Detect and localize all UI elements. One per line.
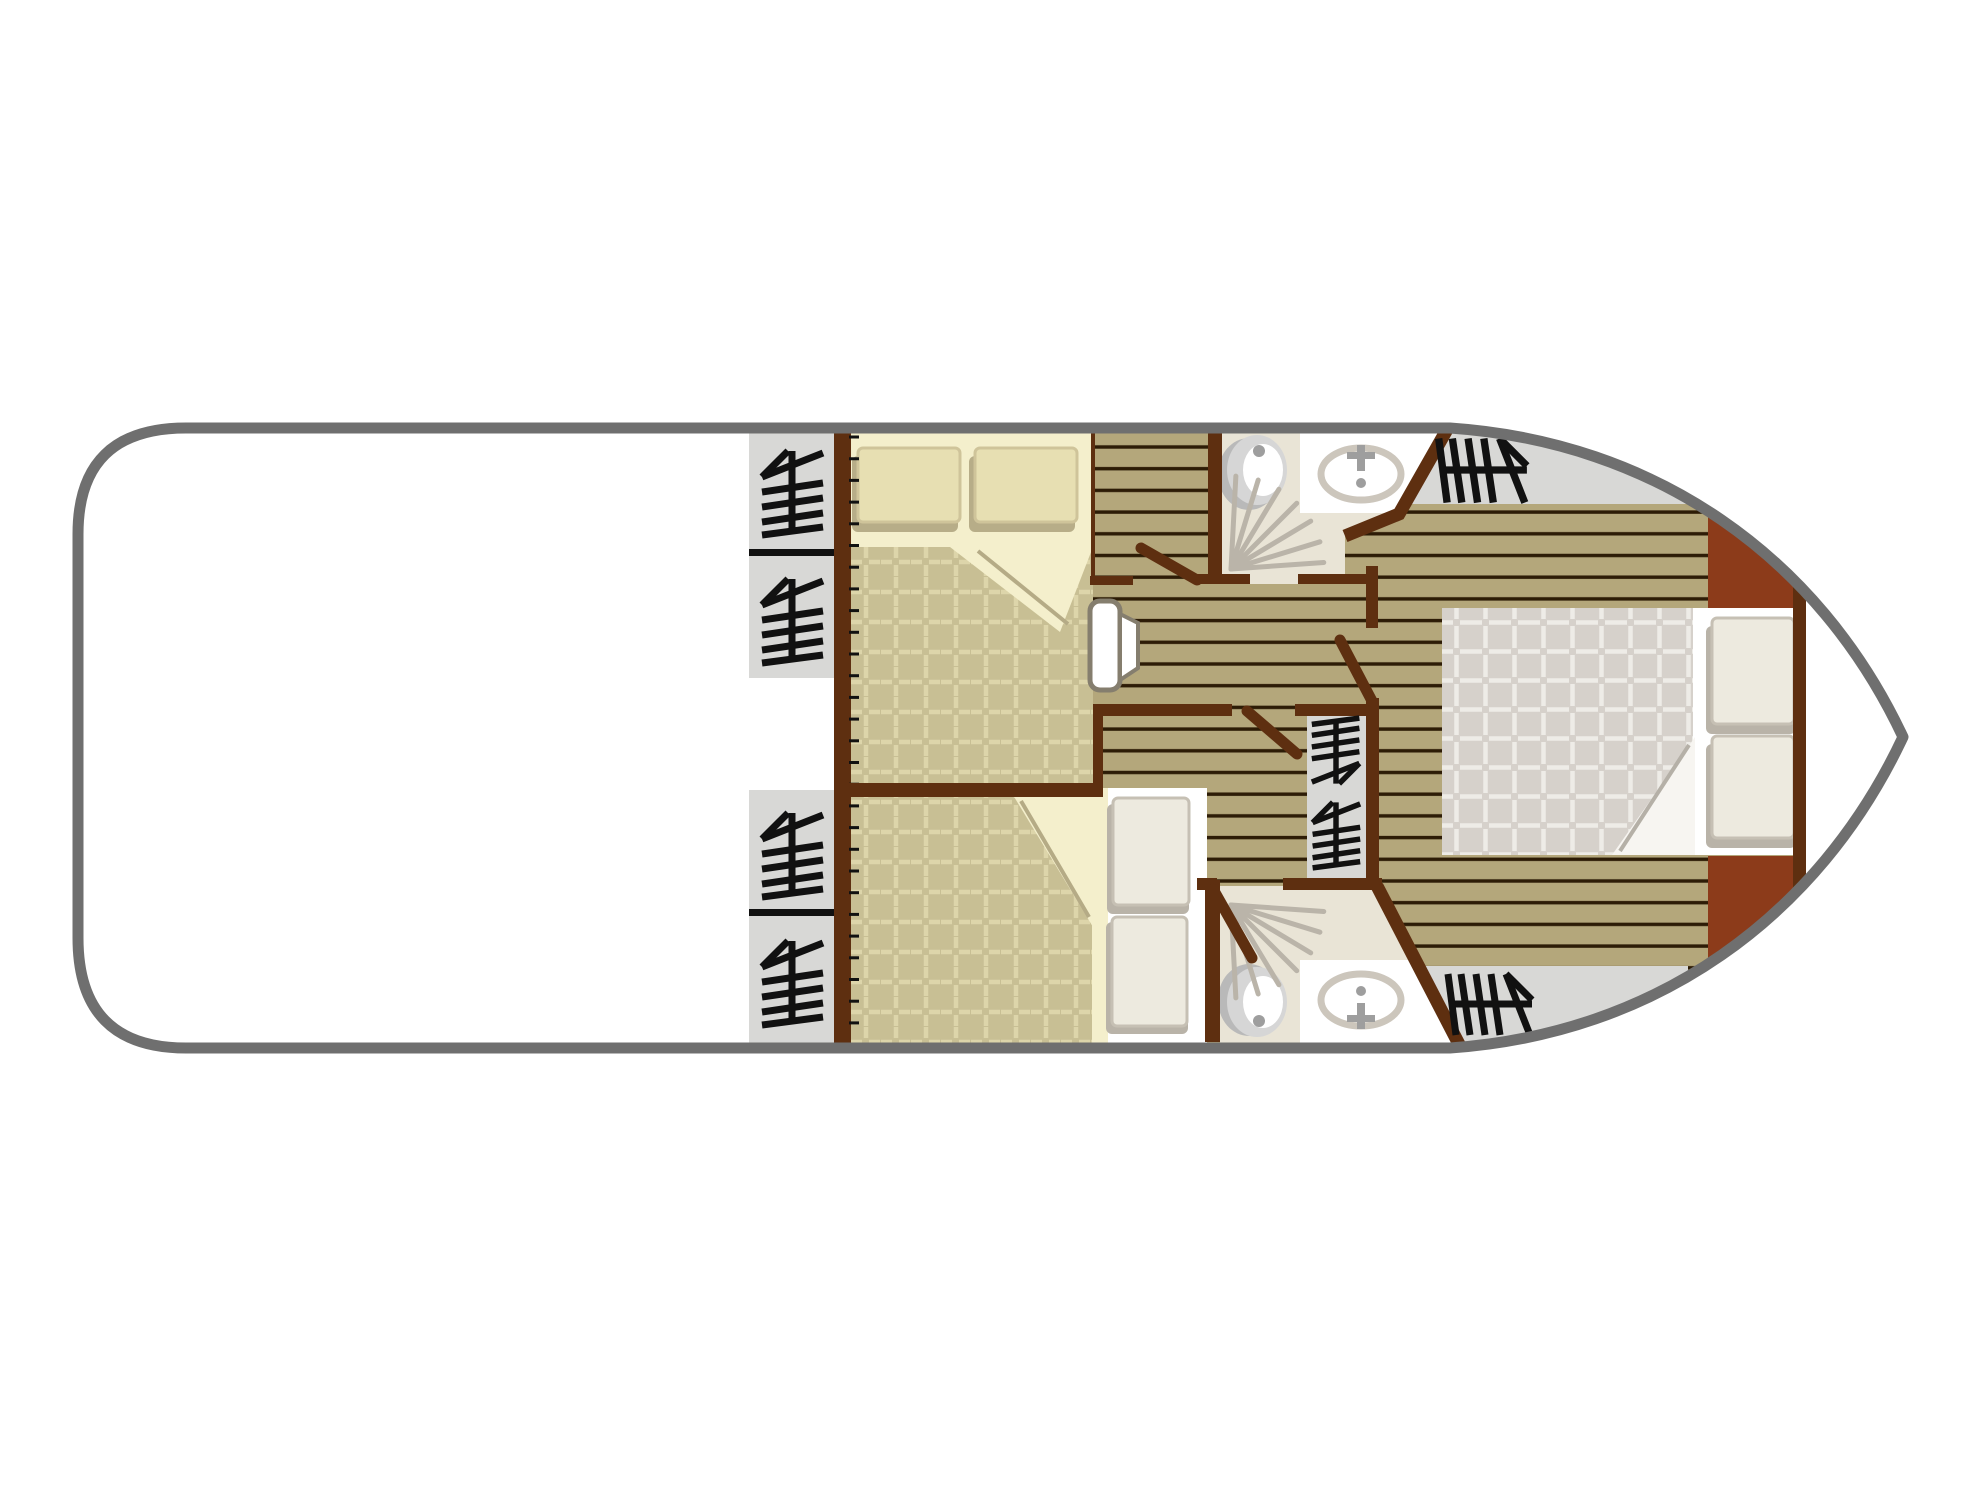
stairs-port-bottom-divider (749, 909, 835, 916)
bathroom-bottom-toilet-button (1253, 1015, 1265, 1027)
wall-cabin-top-door-stub (1090, 576, 1133, 585)
wall-stairs-center-east (1366, 698, 1379, 890)
wall-master-headboard (1793, 578, 1806, 897)
wall-bathroom-top-south-left (1197, 574, 1250, 584)
wall-corridor-connector (1093, 704, 1103, 794)
door-cabin-top-panel-fold (1120, 614, 1138, 680)
wall-bathroom-top-left (1208, 424, 1222, 584)
master-pillow-bottom (1712, 736, 1794, 838)
floor-plan-canvas (0, 0, 1981, 1485)
wall-cabins-left (834, 424, 851, 1052)
wall-bathroom-top-south-right (1298, 574, 1372, 584)
boat-floor-plan (0, 0, 1981, 1485)
stairs-port-top-divider (749, 549, 835, 556)
bathroom-top-tap-cross (1347, 452, 1375, 459)
bathroom-bottom-tap-cross (1347, 1015, 1375, 1022)
door-cabin-top-panel (1090, 601, 1120, 690)
cabin-top-pillow-left (858, 448, 960, 522)
bathroom-top-toilet-button (1253, 445, 1265, 457)
wall-corridor-south-left (1093, 704, 1232, 716)
bathroom-top-tap-dot (1356, 478, 1366, 488)
wall-master-door-jamb (1366, 566, 1378, 628)
cabin-top-pillow-right (975, 448, 1077, 522)
interior-layout (749, 424, 1918, 1052)
wall-cabin-top-edge (1091, 424, 1095, 578)
master-pillow-top (1712, 618, 1794, 724)
bathroom-bottom-tap-dot (1356, 986, 1366, 996)
bathroom-top-shower-drain (1230, 553, 1246, 569)
bow-stairs-top-area (1408, 424, 1700, 504)
wall-corridor-south-right (1295, 704, 1375, 716)
cabin-bottom-pillow-top (1113, 798, 1189, 905)
cabin-bottom-pillow-bottom (1112, 917, 1187, 1026)
wall-cabin-divider (834, 783, 1103, 797)
